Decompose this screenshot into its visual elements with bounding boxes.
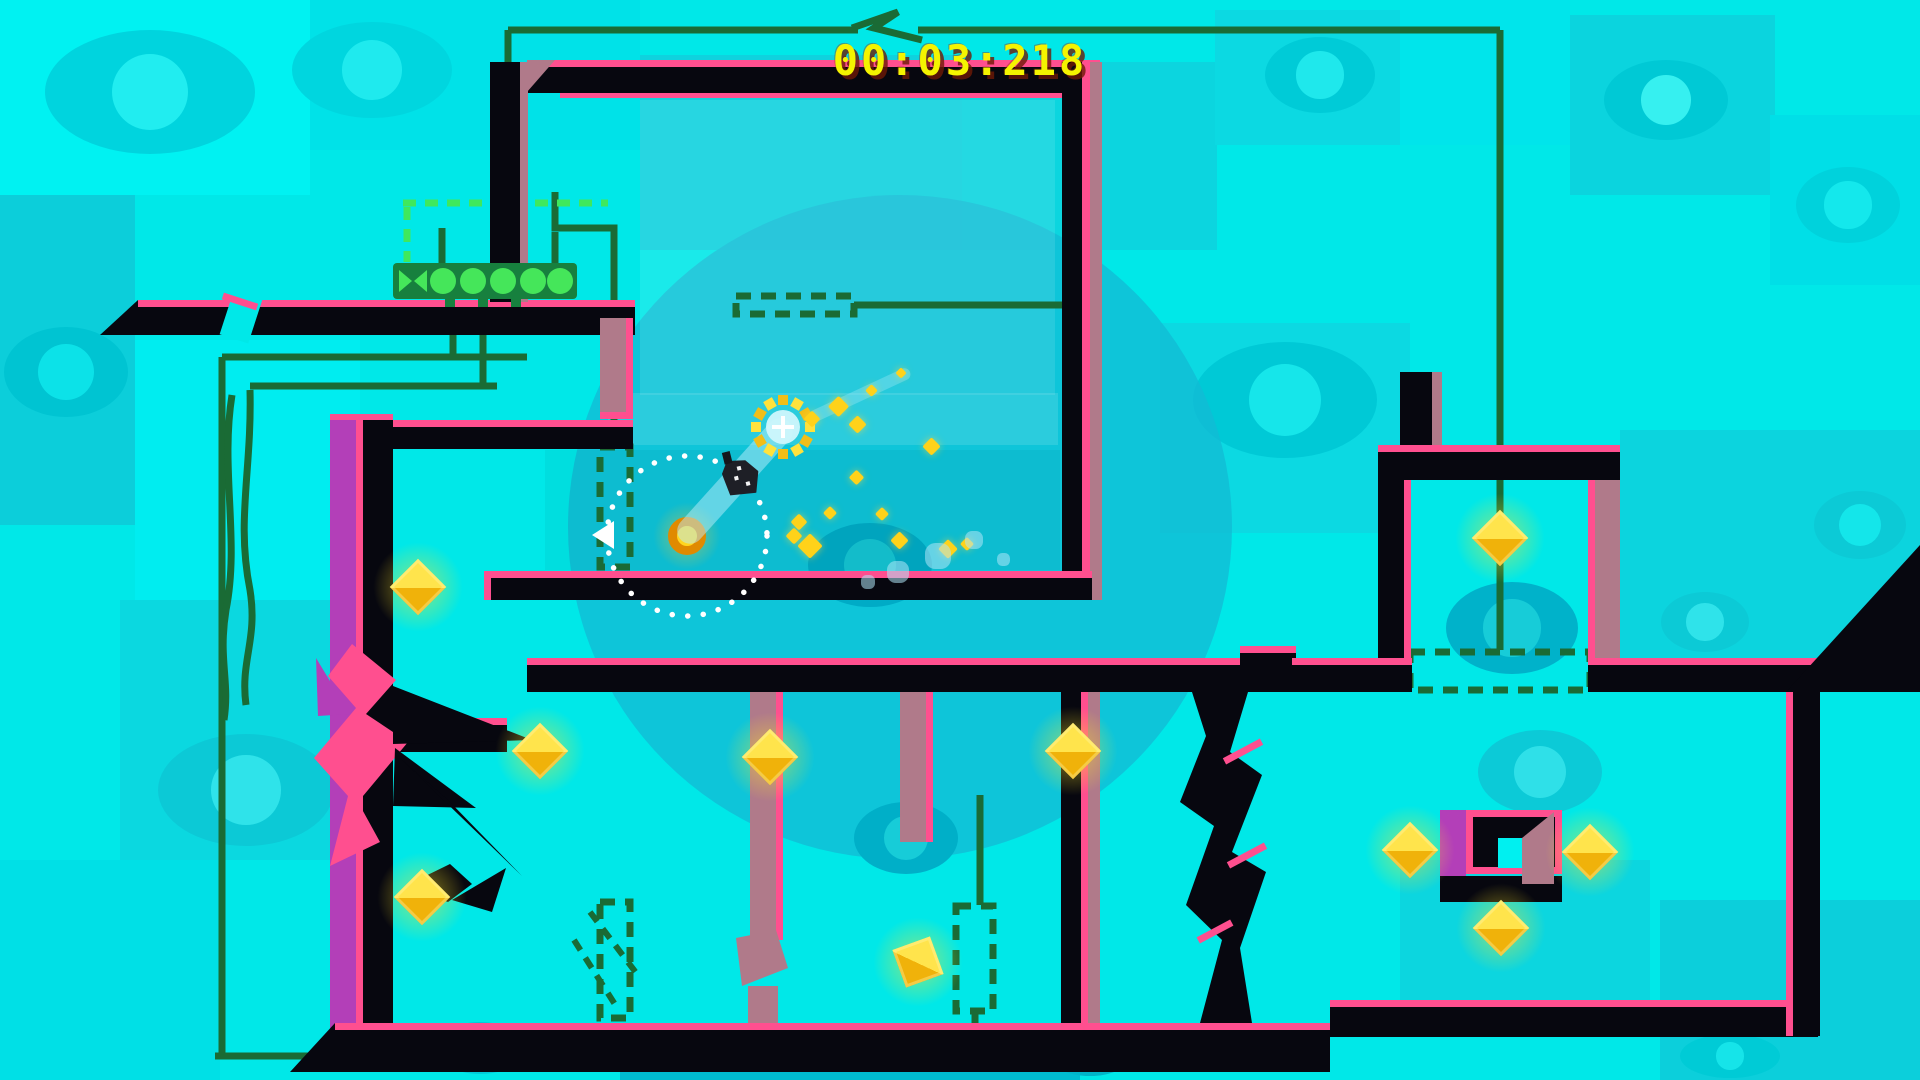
x-switch-icon: [399, 270, 412, 292]
arrow-icon: [592, 521, 614, 549]
burst-spark: [751, 422, 761, 432]
burst-spark: [778, 395, 788, 405]
level-shape: [736, 930, 788, 986]
level-shape: [1786, 545, 1920, 692]
switch-light: [547, 268, 573, 294]
level-shape: [100, 300, 138, 335]
dust-splotch: [997, 553, 1010, 566]
bar-foot: [511, 299, 521, 307]
timer: 00:03:218: [0, 36, 1920, 85]
switch-light: [460, 268, 486, 294]
burst-spark: [778, 449, 788, 459]
level-shape: [393, 748, 476, 808]
switch-light: [520, 268, 546, 294]
dust-splotch: [925, 543, 951, 569]
switch-light: [430, 268, 456, 294]
dust-splotch: [965, 531, 983, 549]
lightning-crack: [314, 644, 408, 866]
dust-splotch: [861, 575, 875, 589]
bar-foot: [445, 299, 455, 307]
switch-light: [490, 268, 516, 294]
shapes-svg: [0, 0, 1920, 1080]
dust-splotch: [887, 561, 909, 583]
burst-sparkle: [772, 425, 794, 429]
bar-foot: [478, 299, 488, 307]
game-viewport[interactable]: 00:03:218: [0, 0, 1920, 1080]
level-shape: [290, 1023, 335, 1072]
x-switch-icon: [414, 270, 427, 292]
